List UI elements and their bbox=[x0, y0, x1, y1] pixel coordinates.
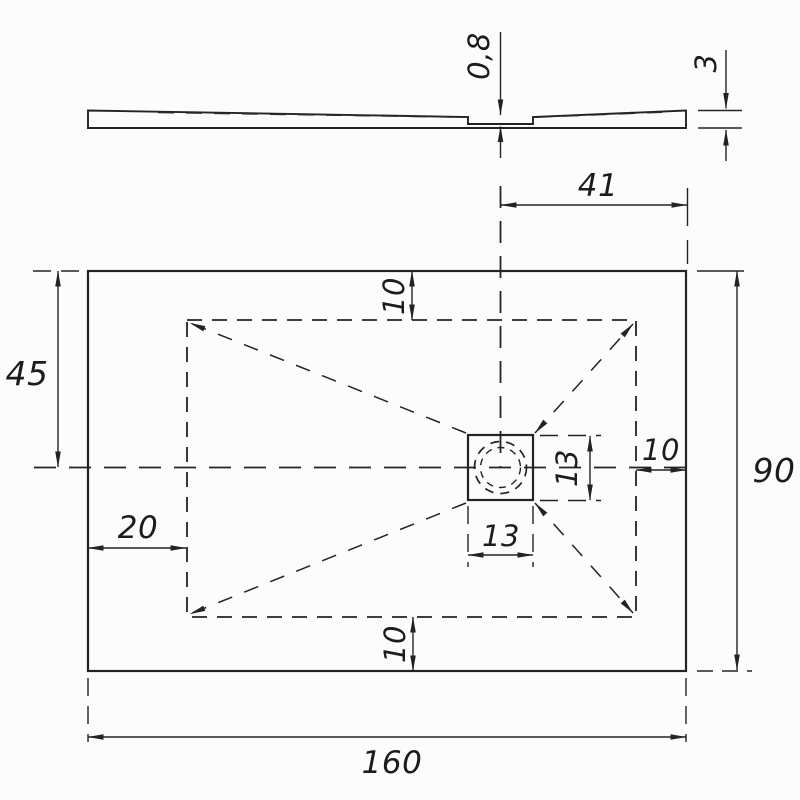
slope-diagonal-bottom-left bbox=[190, 503, 466, 614]
edge-thickness-label: 3 bbox=[689, 54, 723, 73]
technical-drawing: 0,8 3 41 bbox=[0, 0, 800, 800]
dimension-overall-height: 90 bbox=[697, 271, 796, 671]
drain-height-label: 13 bbox=[550, 449, 584, 487]
dimension-right-inset: 10 bbox=[636, 433, 686, 470]
top-inset-label: 10 bbox=[377, 277, 411, 315]
side-profile-view: 0,8 3 bbox=[88, 32, 742, 161]
recess-depth-label: 0,8 bbox=[462, 32, 496, 80]
right-inset-label: 10 bbox=[642, 433, 680, 467]
profile-outline bbox=[88, 111, 686, 129]
slope-diagonal-top-left bbox=[190, 323, 466, 433]
dimension-bottom-inset: 10 bbox=[378, 617, 413, 671]
plan-view: 41 45 90 160 20 10 bbox=[6, 168, 796, 781]
left-inset-label: 20 bbox=[118, 510, 158, 546]
tray-outline bbox=[88, 271, 686, 671]
dimension-left-half-height: 45 bbox=[6, 271, 85, 467]
left-half-height-label: 45 bbox=[6, 354, 49, 393]
dimension-drain-offset-right: 41 bbox=[501, 168, 688, 264]
slope-diagonal-bottom-right bbox=[535, 503, 633, 613]
dimension-left-inset: 20 bbox=[88, 510, 186, 548]
dimension-top-inset: 10 bbox=[377, 271, 412, 320]
dimension-recess-depth: 0,8 bbox=[462, 32, 501, 158]
drain-width-label: 13 bbox=[482, 519, 520, 553]
overall-width-label: 160 bbox=[362, 745, 423, 781]
dimension-drain-height: 13 bbox=[540, 436, 601, 501]
drawing-stage: 0,8 3 41 bbox=[0, 0, 800, 800]
drain-offset-right-label: 41 bbox=[578, 168, 618, 204]
overall-height-label: 90 bbox=[753, 451, 796, 490]
dimension-drain-width: 13 bbox=[468, 506, 533, 567]
dimension-edge-thickness: 3 bbox=[689, 50, 742, 161]
slope-diagonal-top-right bbox=[535, 324, 633, 433]
bottom-inset-label: 10 bbox=[378, 625, 412, 663]
dimension-overall-width: 160 bbox=[88, 678, 686, 781]
